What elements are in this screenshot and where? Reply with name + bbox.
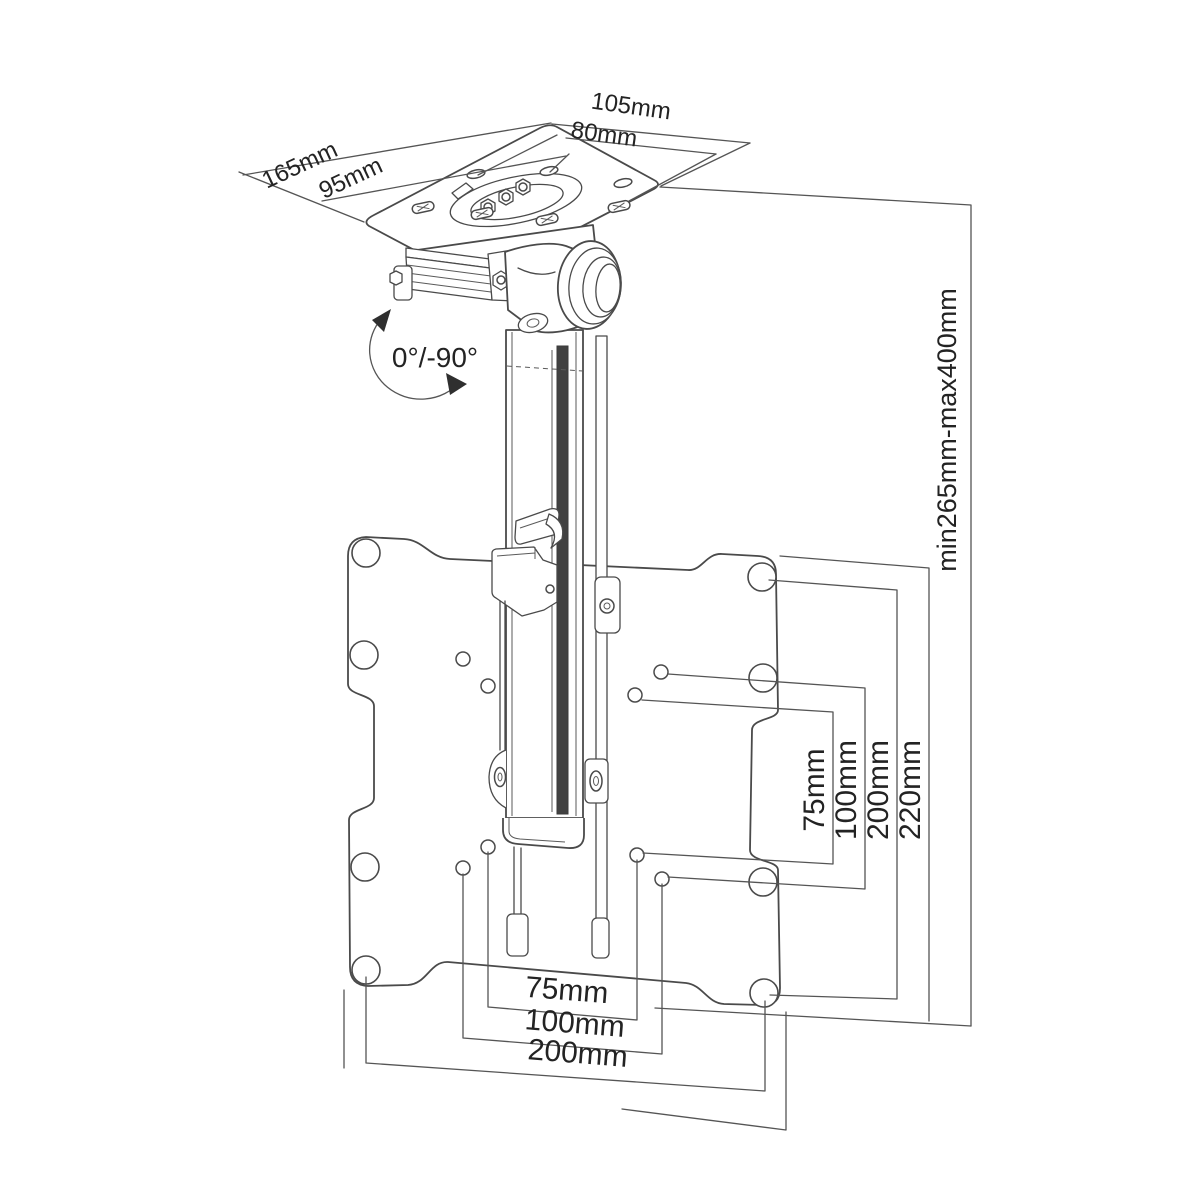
mount-diagram: 165mm 95mm 105mm 80mm xyxy=(0,0,1200,1200)
dim-label-vesa-v-200: 200mm xyxy=(862,740,895,840)
column-slot xyxy=(557,346,568,814)
height-range-label: min265mm-max400mm xyxy=(932,288,962,572)
fold-angle-label: 0°/-90° xyxy=(392,342,478,373)
dim-label-vesa-v-220: 220mm xyxy=(894,740,927,840)
column-lower-hook xyxy=(585,759,608,803)
column-right-foot xyxy=(592,918,609,958)
dim-label-vesa-v-100: 100mm xyxy=(830,740,863,840)
column-bar-cap xyxy=(503,818,584,848)
column-upper-hook xyxy=(595,577,620,633)
mount-diagram-page: 165mm 95mm 105mm 80mm xyxy=(0,0,1200,1200)
dim-label-vesa-h-200: 200mm xyxy=(527,1033,629,1074)
dim-label-vesa-v-75: 75mm xyxy=(798,748,831,831)
fold-angle-annotation: 0°/-90° xyxy=(370,309,478,399)
column-rear-strap xyxy=(596,336,607,936)
column-left-foot xyxy=(507,914,528,956)
hinge-clamp xyxy=(390,248,514,301)
